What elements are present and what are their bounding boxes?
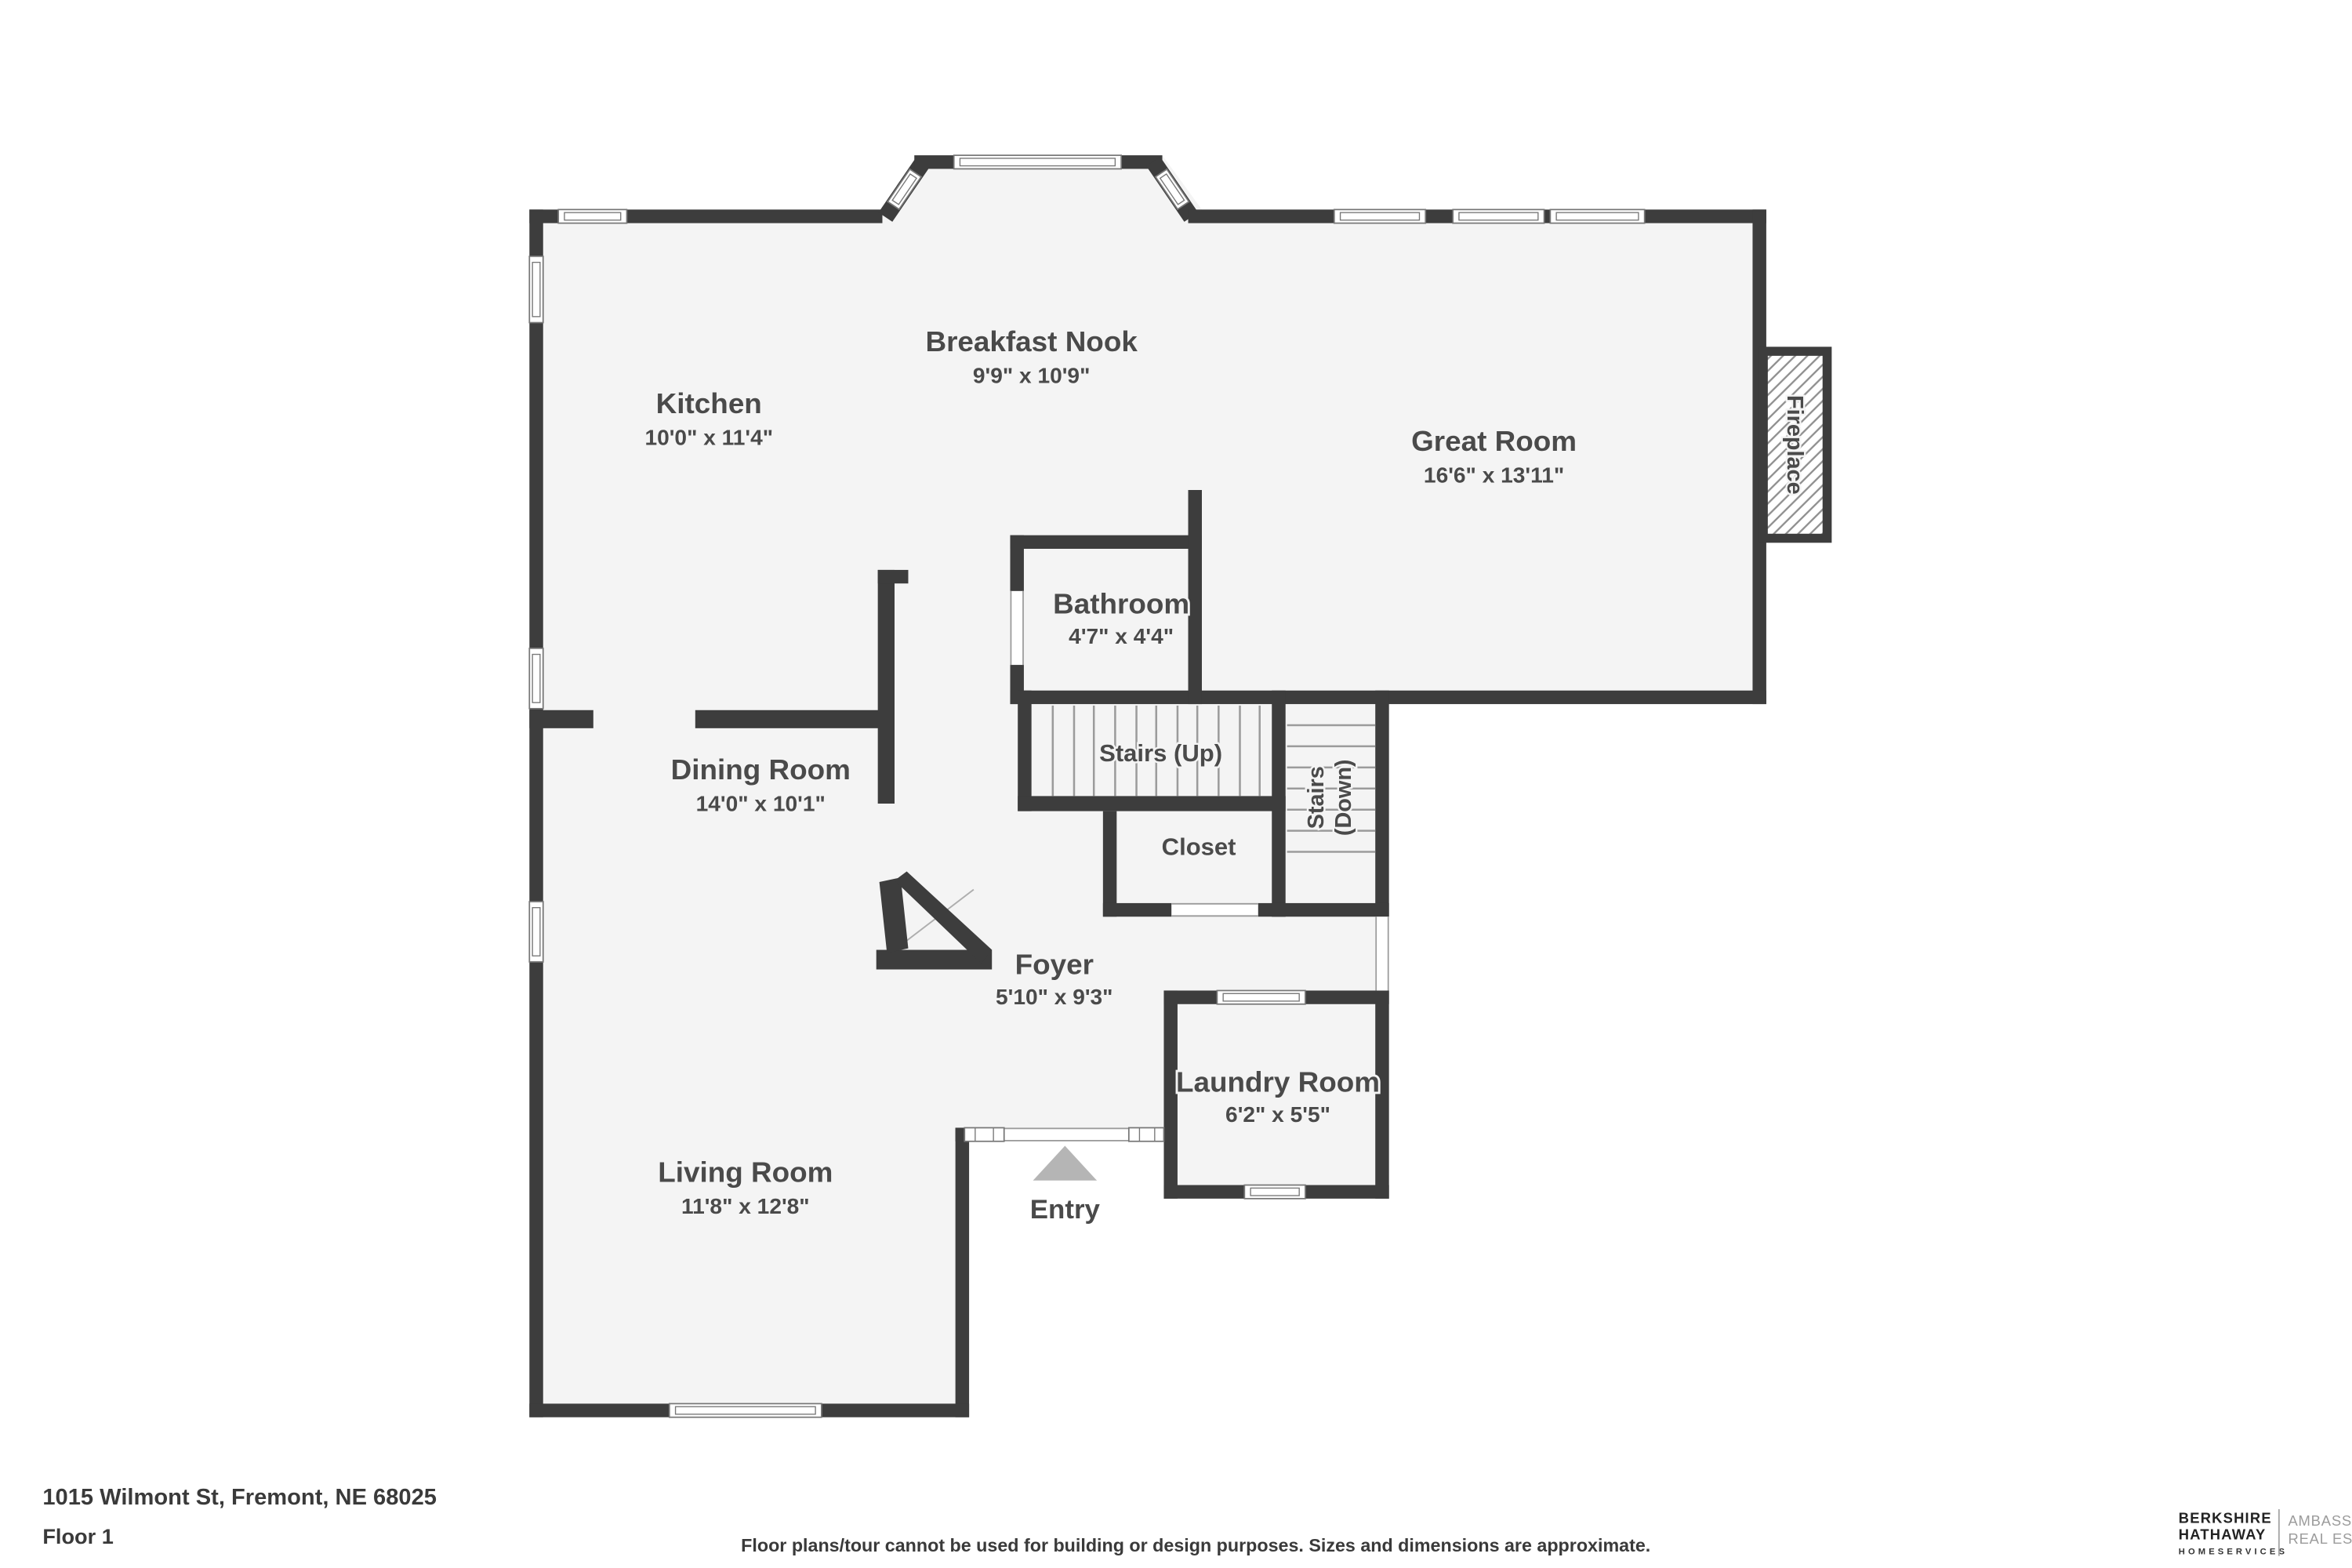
window-top-3 bbox=[1453, 209, 1544, 223]
room-label-laundry-room: Laundry Room bbox=[1176, 1065, 1380, 1098]
room-dims-kitchen: 10'0" x 11'4" bbox=[644, 425, 773, 449]
room-dims-foyer: 5'10" x 9'3" bbox=[996, 985, 1113, 1009]
room-dims-laundry-room: 6'2" x 5'5" bbox=[1225, 1102, 1330, 1127]
window-top-4 bbox=[1550, 209, 1644, 223]
floor-plan-page: Fireplace Breakfast Nook 9'9" x 10'9" Ki… bbox=[0, 0, 2352, 1568]
room-dims-great-room: 16'6" x 13'11" bbox=[1424, 463, 1564, 487]
room-dims-breakfast-nook: 9'9" x 10'9" bbox=[973, 364, 1091, 388]
stairs-down-label-line2: (Down) bbox=[1331, 759, 1356, 836]
window-bay-top bbox=[954, 155, 1121, 169]
room-dims-living-room: 11'8" x 12'8" bbox=[681, 1194, 810, 1218]
room-label-bathroom: Bathroom bbox=[1053, 588, 1189, 620]
closet-label: Closet bbox=[1162, 833, 1236, 861]
stairs-down-label-line1: Stairs bbox=[1304, 766, 1329, 829]
entry-arrow-icon bbox=[1033, 1146, 1098, 1181]
room-label-great-room: Great Room bbox=[1411, 425, 1577, 457]
room-label-living-room: Living Room bbox=[658, 1156, 833, 1189]
fireplace-label: Fireplace bbox=[1782, 395, 1807, 495]
entry-label: Entry bbox=[1030, 1195, 1101, 1225]
room-label-dining-room: Dining Room bbox=[671, 753, 851, 786]
brand-ambassador: AMBASSADOR bbox=[2288, 1512, 2352, 1529]
stairs-up-label: Stairs (Up) bbox=[1099, 739, 1222, 767]
brand-real-estate: REAL ESTATE bbox=[2288, 1530, 2352, 1547]
brand-hathaway: HATHAWAY bbox=[2179, 1526, 2267, 1543]
window-top-1 bbox=[558, 209, 626, 223]
window-top-2 bbox=[1334, 209, 1425, 223]
brokerage-logo: BERKSHIRE HATHAWAY HOMESERVICES AMBASSAD… bbox=[2179, 1509, 2352, 1557]
brand-homeservices: HOMESERVICES bbox=[2179, 1548, 2288, 1557]
room-label-breakfast-nook: Breakfast Nook bbox=[925, 325, 1138, 358]
room-label-kitchen: Kitchen bbox=[656, 387, 762, 419]
entry-sidelight-left bbox=[964, 1127, 1004, 1141]
window-left-2 bbox=[529, 648, 543, 709]
fireplace: Fireplace bbox=[1763, 351, 1828, 538]
window-laundry-top bbox=[1217, 990, 1305, 1004]
floor-label: Floor 1 bbox=[42, 1525, 114, 1548]
footer: 1015 Wilmont St, Fremont, NE 68025 Floor… bbox=[42, 1485, 1650, 1555]
room-dims-bathroom: 4'7" x 4'4" bbox=[1069, 624, 1174, 648]
address-text: 1015 Wilmont St, Fremont, NE 68025 bbox=[42, 1485, 437, 1510]
room-label-foyer: Foyer bbox=[1015, 948, 1094, 980]
brand-berkshire: BERKSHIRE bbox=[2179, 1509, 2272, 1526]
entry-sidelight-right bbox=[1129, 1127, 1164, 1141]
floor-area bbox=[529, 155, 1766, 1417]
disclaimer-text: Floor plans/tour cannot be used for buil… bbox=[741, 1535, 1650, 1555]
window-left-1 bbox=[529, 256, 543, 323]
window-laundry-bottom bbox=[1244, 1185, 1305, 1199]
window-left-3 bbox=[529, 902, 543, 962]
room-dims-dining-room: 14'0" x 10'1" bbox=[696, 792, 826, 816]
window-bottom bbox=[670, 1403, 822, 1417]
floor-plan-canvas: Fireplace Breakfast Nook 9'9" x 10'9" Ki… bbox=[0, 0, 2352, 1568]
